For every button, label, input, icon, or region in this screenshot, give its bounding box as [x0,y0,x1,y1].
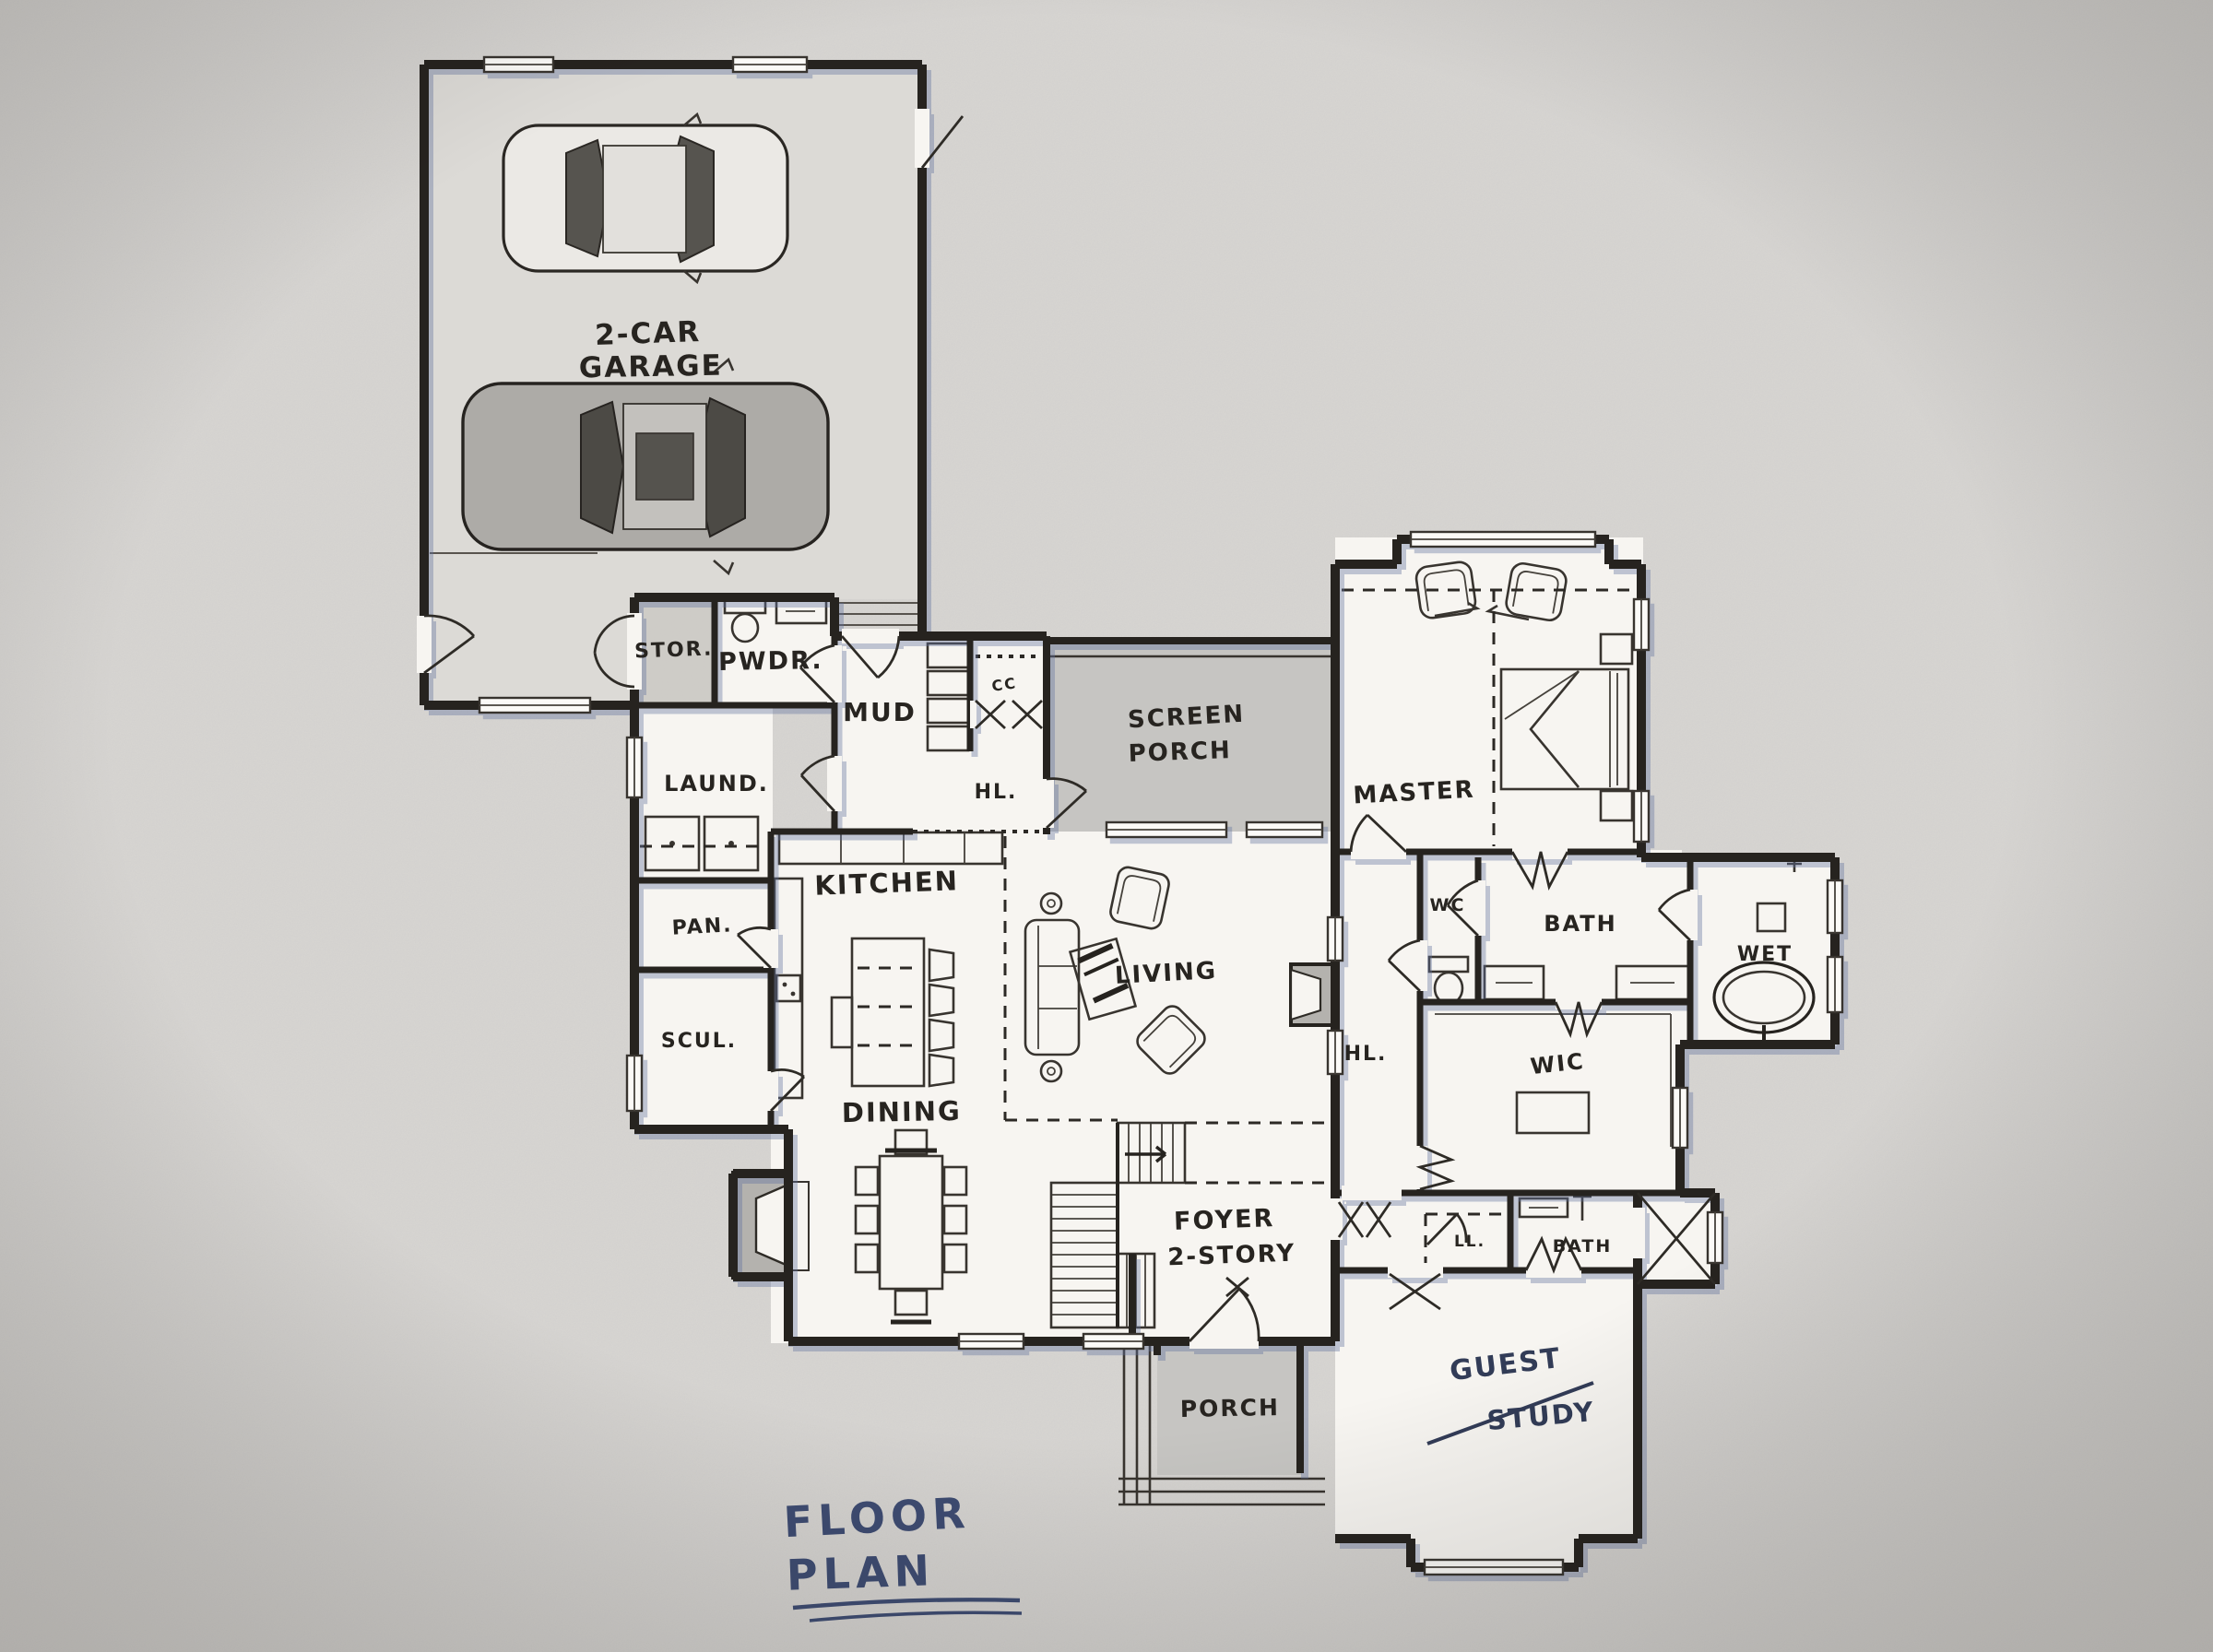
vignette-overlay [0,0,2213,1652]
floor-plan-sheet: 2-CAR GARAGE STOR. PWDR. MUD CC HL. LAUN… [0,0,2213,1652]
floor-plan-drawing: 2-CAR GARAGE STOR. PWDR. MUD CC HL. LAUN… [0,0,2213,1652]
